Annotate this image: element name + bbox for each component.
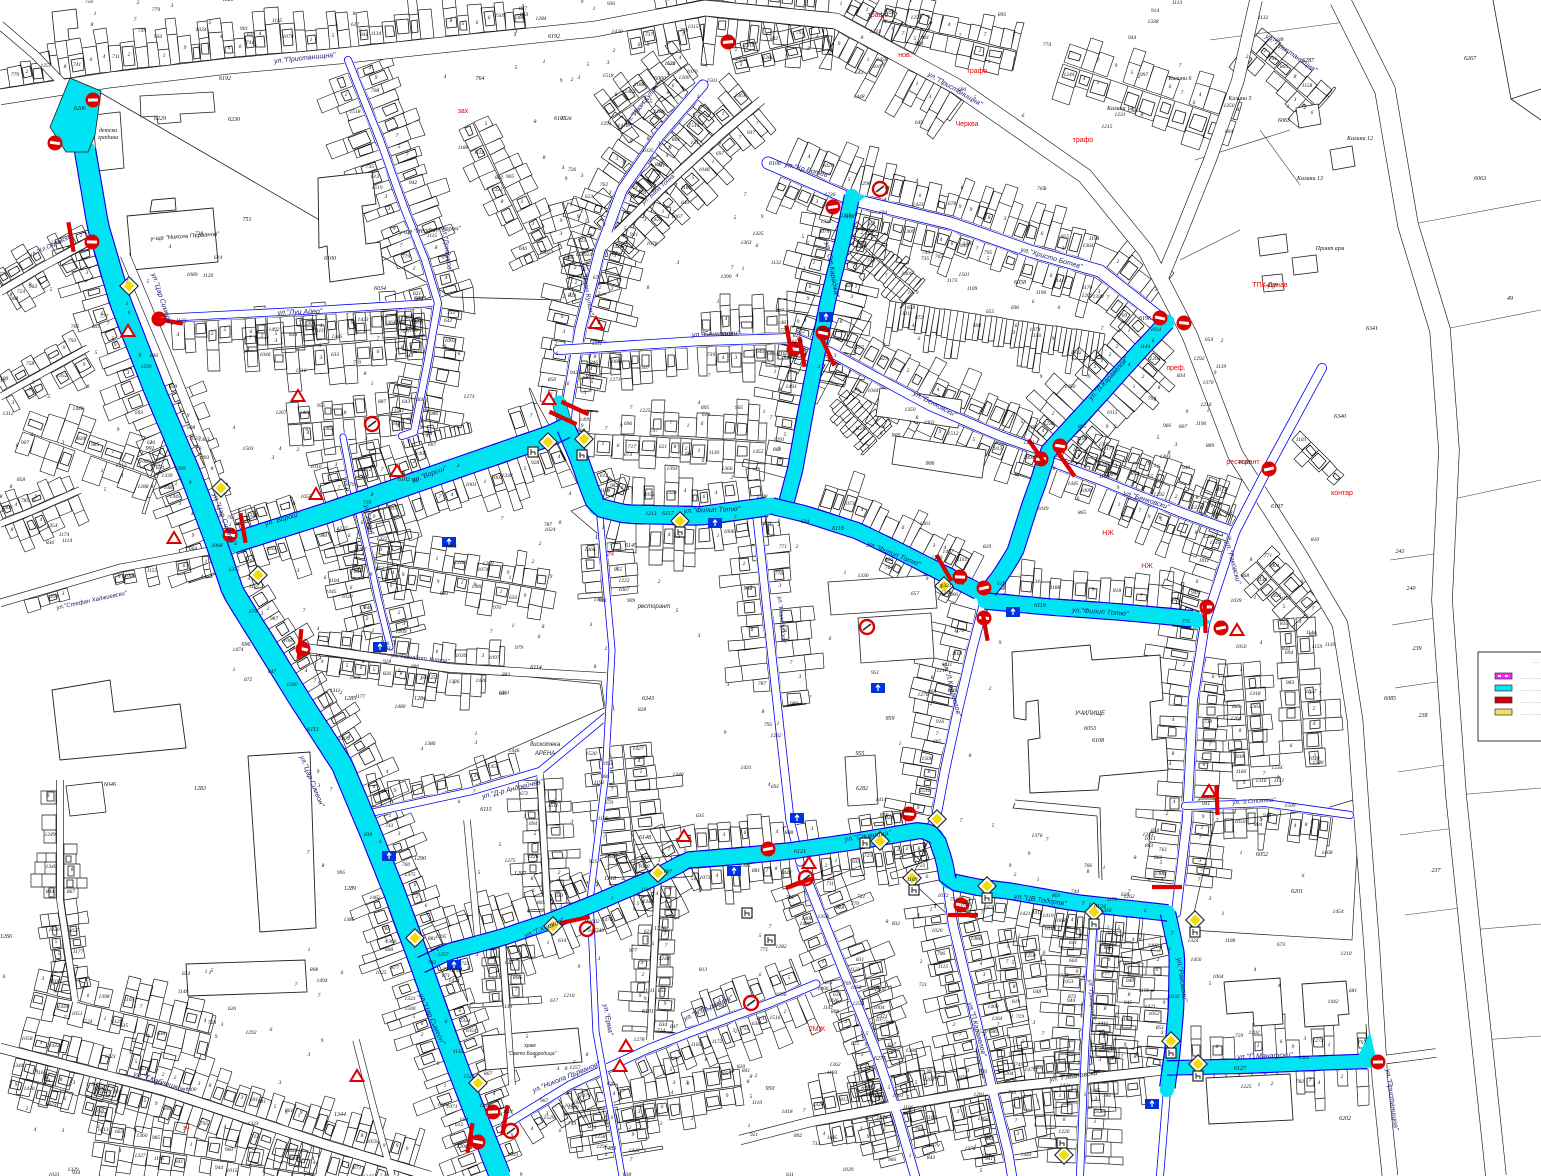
svg-text:8: 8: [762, 709, 765, 715]
svg-text:5: 5: [750, 1094, 753, 1100]
svg-text:7: 7: [803, 1108, 806, 1114]
svg-text:6: 6: [459, 1008, 462, 1014]
svg-text:9: 9: [639, 993, 642, 999]
svg-text:2: 2: [642, 972, 645, 978]
svg-text:1002: 1002: [1148, 943, 1159, 949]
svg-text:1020: 1020: [342, 594, 353, 600]
svg-text:1200: 1200: [679, 75, 690, 81]
svg-text:3: 3: [956, 1109, 960, 1115]
svg-text:8: 8: [232, 528, 235, 534]
svg-text:733: 733: [385, 823, 394, 829]
svg-text:4: 4: [493, 1090, 496, 1097]
svg-text:1433: 1433: [913, 201, 924, 208]
svg-text:8: 8: [29, 282, 32, 288]
svg-text:1: 1: [837, 292, 840, 298]
svg-text:610: 610: [247, 32, 256, 38]
svg-text:6: 6: [64, 1096, 67, 1102]
svg-text:7: 7: [1263, 771, 1266, 777]
svg-text:1207: 1207: [51, 240, 62, 246]
svg-text:9: 9: [1092, 587, 1095, 593]
svg-text:6: 6: [702, 458, 705, 464]
svg-text:1079: 1079: [580, 1093, 591, 1099]
svg-text:4: 4: [816, 33, 819, 40]
svg-text:858: 858: [17, 477, 26, 483]
svg-text:8: 8: [642, 899, 645, 905]
svg-text:1262: 1262: [771, 733, 782, 739]
svg-text:3: 3: [657, 141, 661, 147]
svg-text:1: 1: [910, 0, 913, 4]
svg-text:7: 7: [611, 787, 614, 793]
svg-text:2: 2: [1116, 344, 1119, 350]
svg-text:6: 6: [377, 349, 380, 355]
svg-text:1097: 1097: [489, 655, 500, 661]
svg-text:1478: 1478: [877, 1114, 888, 1121]
svg-text:1245: 1245: [1210, 539, 1221, 546]
svg-text:3: 3: [589, 622, 593, 628]
svg-text:4: 4: [1013, 1102, 1016, 1109]
svg-text:5: 5: [306, 427, 309, 433]
svg-text:3: 3: [562, 329, 566, 335]
svg-text:621: 621: [659, 444, 668, 450]
svg-text:9: 9: [639, 189, 642, 195]
svg-text:1048: 1048: [699, 166, 710, 173]
svg-text:3: 3: [364, 436, 368, 442]
svg-text:2: 2: [413, 459, 416, 465]
svg-text:826: 826: [383, 671, 392, 677]
svg-text:895: 895: [998, 12, 1007, 18]
svg-text:808: 808: [785, 830, 794, 836]
svg-text:828: 828: [638, 707, 647, 713]
svg-text:5: 5: [992, 823, 995, 829]
svg-text:8: 8: [861, 35, 864, 41]
svg-text:1291: 1291: [601, 121, 612, 127]
svg-text:1199: 1199: [451, 968, 462, 974]
svg-text:6060: 6060: [654, 76, 666, 82]
svg-text:607: 607: [428, 442, 437, 448]
svg-text:2: 2: [796, 544, 799, 550]
svg-text:2: 2: [1211, 503, 1214, 509]
svg-text:3: 3: [637, 1109, 641, 1115]
svg-text:5: 5: [767, 527, 770, 533]
svg-text:1079: 1079: [344, 482, 355, 488]
svg-text:4: 4: [1254, 966, 1257, 973]
svg-text:1104: 1104: [329, 577, 340, 584]
svg-text:6: 6: [876, 1088, 879, 1094]
svg-text:1197: 1197: [1281, 596, 1292, 602]
svg-text:1406: 1406: [800, 920, 811, 927]
svg-text:3: 3: [1012, 330, 1016, 336]
svg-text:980: 980: [790, 701, 799, 707]
svg-text:1188: 1188: [600, 488, 611, 494]
svg-text:1011: 1011: [1199, 558, 1210, 564]
svg-text:1063: 1063: [924, 420, 935, 426]
svg-text:2: 2: [1109, 352, 1112, 358]
svg-text:957: 957: [927, 1068, 936, 1074]
svg-text:1516: 1516: [296, 368, 307, 374]
svg-text:8: 8: [779, 387, 782, 393]
svg-text:9: 9: [838, 41, 841, 47]
svg-text:1255: 1255: [1143, 474, 1154, 480]
svg-text:8: 8: [1128, 992, 1131, 998]
svg-text:1282: 1282: [776, 944, 787, 950]
svg-text:6: 6: [293, 501, 296, 507]
svg-text:1103: 1103: [1296, 437, 1307, 443]
svg-text:3: 3: [559, 231, 563, 237]
svg-text:1132: 1132: [1258, 15, 1269, 21]
svg-text:1: 1: [697, 94, 700, 100]
svg-text:1278: 1278: [634, 1037, 645, 1043]
svg-text:6: 6: [617, 443, 620, 449]
svg-text:1: 1: [1128, 328, 1131, 334]
svg-text:9: 9: [187, 413, 190, 419]
svg-text:1466: 1466: [585, 546, 596, 553]
svg-text:4: 4: [948, 21, 951, 28]
svg-text:НЖ: НЖ: [1102, 530, 1114, 537]
svg-text:1468: 1468: [1322, 849, 1333, 856]
svg-text:3: 3: [456, 463, 460, 469]
svg-text:1052: 1052: [1149, 1011, 1160, 1017]
svg-text:1339: 1339: [1093, 294, 1104, 300]
svg-text:1: 1: [1254, 595, 1257, 601]
svg-text:1: 1: [763, 409, 766, 415]
svg-text:4: 4: [1071, 916, 1074, 923]
svg-text:9: 9: [1115, 63, 1118, 69]
svg-text:1257: 1257: [41, 63, 52, 69]
svg-text:1: 1: [1287, 104, 1290, 110]
svg-text:928: 928: [290, 1156, 299, 1162]
svg-text:8: 8: [1159, 515, 1162, 521]
svg-text:5: 5: [346, 663, 349, 669]
svg-text:9: 9: [373, 514, 376, 520]
svg-text:1: 1: [899, 741, 902, 747]
svg-text:5: 5: [515, 65, 518, 71]
svg-text:6197: 6197: [1271, 504, 1284, 510]
svg-text:8: 8: [880, 431, 883, 437]
svg-text:3: 3: [1154, 287, 1158, 293]
svg-text:867: 867: [67, 889, 76, 895]
svg-text:237: 237: [1432, 868, 1442, 874]
svg-text:715: 715: [251, 1134, 260, 1140]
svg-text:9: 9: [1009, 863, 1012, 869]
svg-text:1431: 1431: [508, 1151, 519, 1158]
svg-text:719: 719: [363, 500, 372, 506]
svg-text:9: 9: [35, 1068, 38, 1074]
svg-text:4: 4: [940, 236, 943, 243]
svg-text:1352: 1352: [492, 187, 503, 193]
svg-text:5: 5: [1021, 419, 1024, 425]
svg-text:4: 4: [141, 450, 144, 457]
svg-text:2: 2: [1022, 1039, 1025, 1045]
svg-text:1234: 1234: [1272, 764, 1283, 771]
svg-text:2: 2: [1138, 74, 1141, 80]
svg-text:7: 7: [630, 1157, 633, 1163]
svg-text:3: 3: [1016, 1131, 1020, 1137]
svg-text:9: 9: [827, 38, 830, 44]
svg-text:824: 824: [113, 1088, 122, 1095]
svg-text:6: 6: [744, 830, 747, 836]
svg-text:6192: 6192: [548, 34, 560, 40]
svg-text:ресторант: ресторант: [637, 604, 671, 610]
svg-text:9: 9: [807, 296, 810, 302]
svg-text:985: 985: [91, 442, 100, 448]
svg-text:925: 925: [589, 859, 598, 865]
svg-text:2: 2: [897, 847, 900, 853]
svg-text:9: 9: [1052, 336, 1055, 342]
svg-text:1411: 1411: [1098, 1020, 1109, 1027]
svg-text:1: 1: [1154, 463, 1157, 469]
svg-text:1380: 1380: [472, 584, 483, 590]
svg-text:1: 1: [792, 324, 795, 330]
svg-text:1105: 1105: [827, 1135, 838, 1141]
svg-text:928: 928: [383, 659, 392, 665]
svg-text:4: 4: [980, 960, 983, 967]
svg-text:1105: 1105: [691, 1042, 702, 1048]
svg-text:3: 3: [966, 1068, 970, 1074]
svg-text:1: 1: [104, 1016, 107, 1022]
svg-text:941: 941: [258, 1098, 267, 1105]
svg-text:6063: 6063: [1278, 118, 1290, 124]
svg-text:1: 1: [308, 947, 311, 953]
svg-text:2: 2: [575, 280, 578, 286]
svg-text:5: 5: [147, 279, 150, 285]
svg-text:7: 7: [676, 1058, 679, 1064]
svg-text:1509: 1509: [495, 13, 506, 19]
svg-text:844: 844: [46, 888, 55, 895]
svg-text:8: 8: [209, 1083, 212, 1089]
svg-text:2: 2: [550, 392, 553, 398]
svg-text:4: 4: [444, 73, 447, 80]
svg-text:8: 8: [928, 769, 931, 775]
svg-text:6: 6: [1050, 273, 1053, 279]
svg-text:1240: 1240: [287, 681, 298, 688]
svg-text:729: 729: [1235, 1033, 1244, 1039]
svg-text:2: 2: [861, 230, 864, 236]
svg-text:7: 7: [731, 265, 734, 271]
svg-text:1: 1: [475, 731, 478, 737]
svg-text:1: 1: [229, 522, 232, 528]
svg-text:2: 2: [413, 266, 416, 272]
svg-text:3: 3: [608, 190, 612, 196]
svg-text:УЧИЛИЩЕ: УЧИЛИЩЕ: [1074, 711, 1106, 717]
svg-text:954: 954: [904, 808, 913, 815]
svg-text:1052: 1052: [644, 492, 655, 498]
svg-text:1179: 1179: [1107, 897, 1118, 903]
svg-text:8: 8: [322, 863, 325, 869]
svg-text:1485: 1485: [1090, 1087, 1101, 1094]
svg-text:6: 6: [701, 421, 704, 427]
svg-text:8: 8: [615, 92, 618, 98]
svg-text:3: 3: [85, 270, 89, 276]
svg-text:Калини 6: Калини 6: [1167, 76, 1191, 82]
svg-text:6: 6: [90, 57, 93, 63]
svg-text:1410: 1410: [1043, 912, 1054, 919]
svg-text:620: 620: [845, 283, 854, 289]
svg-text:2: 2: [267, 606, 270, 612]
svg-text:797: 797: [1358, 1040, 1367, 1046]
svg-text:2: 2: [989, 686, 992, 692]
svg-text:5: 5: [211, 968, 214, 974]
svg-text:1364: 1364: [1250, 703, 1261, 710]
svg-text:ТПК Дунав: ТПК Дунав: [1252, 282, 1287, 289]
svg-text:8: 8: [151, 484, 154, 490]
svg-text:777: 777: [100, 314, 109, 320]
svg-text:654: 654: [1205, 336, 1214, 343]
svg-text:5: 5: [524, 814, 527, 820]
svg-text:6: 6: [1077, 496, 1080, 502]
svg-text:4: 4: [169, 243, 172, 250]
svg-text:9: 9: [581, 0, 584, 5]
svg-text:867: 867: [484, 1071, 493, 1077]
svg-text:7: 7: [515, 987, 518, 993]
svg-text:983: 983: [1286, 680, 1295, 686]
svg-text:6: 6: [350, 585, 353, 591]
svg-text:1103: 1103: [124, 997, 135, 1003]
svg-text:755: 755: [741, 1026, 750, 1032]
svg-text:4: 4: [317, 625, 320, 632]
svg-text:1071: 1071: [1216, 487, 1227, 493]
svg-text:945: 945: [1191, 589, 1200, 596]
svg-text:9: 9: [550, 574, 553, 580]
svg-text:1039: 1039: [456, 653, 467, 659]
svg-text:766: 766: [1084, 863, 1093, 869]
svg-text:6: 6: [883, 1127, 886, 1133]
svg-text:1020: 1020: [932, 928, 943, 934]
svg-text:770: 770: [851, 901, 860, 907]
svg-text:1196: 1196: [1196, 421, 1207, 427]
svg-text:978: 978: [959, 1075, 968, 1081]
svg-text:1311: 1311: [902, 311, 913, 317]
svg-text:802: 802: [495, 175, 504, 181]
svg-text:1031: 1031: [1151, 327, 1162, 333]
svg-text:1: 1: [474, 773, 477, 779]
svg-text:9: 9: [117, 427, 120, 433]
svg-text:5: 5: [855, 212, 858, 218]
svg-text:6115: 6115: [480, 807, 492, 813]
svg-text:3: 3: [690, 1116, 694, 1122]
svg-text:6052: 6052: [1256, 852, 1268, 858]
svg-text:7: 7: [1209, 742, 1212, 748]
svg-text:9: 9: [406, 1146, 409, 1152]
svg-text:668: 668: [385, 947, 394, 953]
svg-text:1421: 1421: [1145, 1003, 1156, 1010]
svg-text:4: 4: [233, 424, 236, 431]
svg-text:1110: 1110: [752, 1100, 762, 1106]
svg-text:689: 689: [767, 351, 776, 357]
svg-text:6108: 6108: [1092, 738, 1104, 744]
svg-text:1231: 1231: [870, 29, 881, 35]
svg-text:9: 9: [1124, 1042, 1127, 1048]
svg-text:8: 8: [751, 627, 754, 633]
svg-text:9: 9: [155, 1101, 158, 1107]
svg-text:7: 7: [744, 192, 747, 198]
svg-text:3: 3: [356, 567, 360, 573]
svg-text:6: 6: [891, 1050, 894, 1056]
svg-text:840: 840: [405, 352, 414, 359]
svg-text:7: 7: [1107, 295, 1110, 301]
svg-text:1188: 1188: [634, 82, 645, 88]
svg-text:1023: 1023: [46, 1102, 57, 1108]
svg-text:1071: 1071: [961, 902, 972, 908]
svg-text:7: 7: [986, 635, 989, 641]
svg-text:3: 3: [615, 156, 619, 162]
svg-text:9: 9: [524, 593, 527, 599]
svg-text:8: 8: [747, 1079, 750, 1085]
svg-text:7: 7: [530, 413, 533, 419]
svg-text:7: 7: [960, 818, 963, 824]
svg-text:1002: 1002: [589, 919, 600, 925]
svg-text:9: 9: [865, 1042, 868, 1048]
svg-text:612: 612: [600, 473, 609, 479]
svg-text:3: 3: [1293, 97, 1297, 103]
svg-text:3: 3: [526, 908, 530, 914]
svg-text:7: 7: [809, 695, 812, 701]
svg-text:665: 665: [1232, 704, 1241, 710]
svg-text:1511: 1511: [592, 341, 603, 347]
svg-text:2: 2: [1221, 338, 1224, 344]
svg-text:3: 3: [61, 440, 65, 446]
svg-text:"Свето Богородица": "Свето Богородица": [508, 1051, 557, 1057]
svg-text:4: 4: [613, 1090, 616, 1097]
svg-text:3: 3: [798, 674, 802, 680]
svg-text:1237: 1237: [337, 526, 348, 532]
svg-text:4: 4: [1199, 91, 1202, 98]
svg-text:1231: 1231: [1115, 112, 1126, 118]
svg-text:810: 810: [1311, 537, 1320, 543]
svg-text:1: 1: [1201, 825, 1204, 831]
svg-text:9: 9: [520, 1172, 523, 1176]
svg-text:9: 9: [669, 145, 672, 151]
svg-text:8: 8: [647, 285, 650, 291]
svg-text:834: 834: [1177, 372, 1186, 379]
svg-text:642: 642: [444, 317, 453, 324]
svg-text:1: 1: [717, 533, 720, 539]
svg-text:681: 681: [1349, 988, 1358, 994]
svg-text:2: 2: [1160, 944, 1163, 950]
svg-text:4: 4: [362, 658, 365, 665]
svg-text:4: 4: [698, 399, 701, 406]
svg-text:9: 9: [970, 207, 973, 213]
svg-text:3: 3: [577, 75, 581, 81]
svg-text:1443: 1443: [1021, 1151, 1032, 1158]
svg-text:ресторант: ресторант: [1226, 459, 1260, 466]
svg-text:841: 841: [742, 1067, 751, 1074]
svg-text:6: 6: [3, 974, 6, 980]
svg-text:3: 3: [475, 952, 479, 958]
svg-text:7: 7: [984, 32, 987, 38]
svg-text:1412: 1412: [1032, 909, 1043, 916]
svg-text:1488: 1488: [757, 493, 768, 500]
svg-text:2: 2: [1118, 959, 1121, 965]
svg-text:6: 6: [616, 566, 619, 572]
svg-text:1340: 1340: [438, 1101, 449, 1108]
svg-text:7: 7: [1171, 931, 1174, 937]
svg-text:942: 942: [570, 369, 579, 376]
svg-text:855: 855: [1061, 234, 1070, 240]
svg-text:9: 9: [1040, 374, 1043, 380]
svg-text:7: 7: [769, 924, 772, 930]
svg-text:1116: 1116: [641, 887, 651, 893]
svg-text:2: 2: [806, 868, 809, 874]
svg-text:1070: 1070: [283, 34, 294, 40]
svg-text:1213: 1213: [646, 511, 657, 517]
svg-text:1050: 1050: [1235, 819, 1246, 825]
svg-text:6114: 6114: [530, 664, 542, 671]
svg-text:4: 4: [715, 489, 718, 496]
svg-text:1055: 1055: [301, 494, 312, 500]
svg-text:5: 5: [112, 336, 115, 342]
svg-text:нов.: нов.: [898, 52, 911, 59]
svg-text:3: 3: [643, 217, 647, 223]
